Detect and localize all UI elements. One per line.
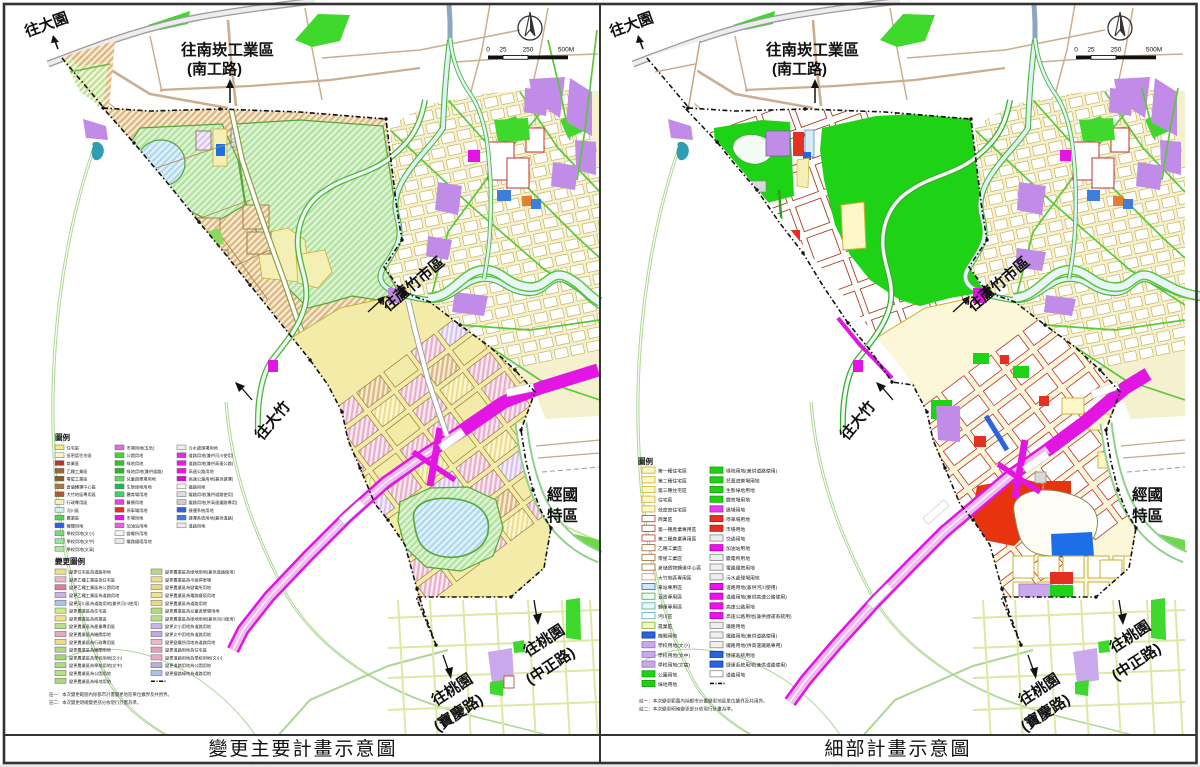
svg-text:加油站用地: 加油站用地 [726, 545, 750, 552]
svg-text:電路鐵塔用地: 電路鐵塔用地 [127, 538, 153, 545]
svg-text:鐵路用地: 鐵路用地 [726, 623, 745, 630]
svg-text:學校用地(文中): 學校用地(文中) [67, 538, 96, 545]
svg-text:變更農業區為機關用地: 變更農業區為機關用地 [69, 647, 112, 654]
svg-text:農業區: 農業區 [658, 623, 673, 630]
svg-text:鐵路用地(兼供道路使用): 鐵路用地(兼供道路使用) [726, 633, 778, 640]
svg-text:道路用地: 道路用地 [726, 671, 745, 678]
svg-text:倉儲貨物轉運中心區: 倉儲貨物轉運中心區 [658, 565, 701, 572]
svg-text:註一：本次變更範圍內除都市計畫變更地區單位擴界及共用界。: 註一：本次變更範圍內除都市計畫變更地區單位擴界及共用界。 [639, 697, 768, 704]
svg-text:註二：本次變更明確變更部分依現行計畫為準。: 註二：本次變更明確變更部分依現行計畫為準。 [49, 699, 141, 706]
svg-text:污水處理場用地: 污水處理場用地 [189, 444, 219, 451]
svg-text:道路用地(兼供河川使用): 道路用地(兼供河川使用) [189, 452, 234, 459]
svg-text:道路用地(兼供高速公路): 道路用地(兼供高速公路) [189, 460, 234, 467]
svg-text:低密度住宅區: 低密度住宅區 [67, 452, 92, 459]
svg-text:往大園: 往大園 [607, 8, 655, 40]
svg-text:變更道路用地為公園用地: 變更道路用地為公園用地 [165, 662, 212, 669]
svg-text:綠地用地(兼供道路使用): 綠地用地(兼供道路使用) [726, 468, 778, 475]
svg-text:變更圖例: 變更圖例 [54, 556, 85, 566]
svg-text:住宅區: 住宅區 [67, 444, 80, 450]
svg-text:綠地用地: 綠地用地 [127, 460, 145, 467]
svg-text:道路用地(兼供高速公路使用): 道路用地(兼供高速公路使用) [726, 594, 787, 601]
svg-text:特區: 特區 [547, 506, 578, 525]
svg-text:低密度住宅區: 低密度住宅區 [658, 506, 687, 513]
svg-text:變更農業區為兒童遊樂場用地: 變更農業區為兒童遊樂場用地 [165, 608, 220, 615]
svg-text:捷運系統用地(兼供道路使用): 捷運系統用地(兼供道路使用) [726, 662, 787, 669]
svg-text:行政專用區: 行政專用區 [67, 499, 88, 506]
svg-text:變更乙種工業區為道路用地: 變更乙種工業區為道路用地 [69, 592, 120, 599]
svg-text:兒童遊樂場用地: 兒童遊樂場用地 [127, 476, 157, 483]
svg-text:變更道路用地為住宅區: 變更道路用地為住宅區 [165, 647, 207, 654]
svg-text:變更鐵路緣地為道路用地: 變更鐵路緣地為道路用地 [165, 670, 212, 677]
svg-text:變更河川區為道路用地(兼供河川使用): 變更河川區為道路用地(兼供河川使用) [69, 600, 139, 607]
svg-text:交通用地: 交通用地 [726, 536, 745, 543]
svg-text:鐵路用地(兼供道路使用): 鐵路用地(兼供道路使用) [189, 491, 234, 498]
svg-text:捷運系統用地(兼供道路): 捷運系統用地(兼供道路) [189, 515, 234, 522]
svg-text:變更農業區為平面停車場: 變更農業區為平面停車場 [165, 576, 212, 583]
svg-text:圖例: 圖例 [638, 456, 653, 466]
svg-text:捷運系統用地: 捷運系統用地 [726, 652, 755, 659]
svg-text:特區: 特區 [1132, 506, 1163, 525]
svg-text:經國: 經國 [1132, 485, 1163, 504]
svg-text:(南工路): (南工路) [187, 60, 242, 78]
svg-text:變更農業區為商業區: 變更農業區為商業區 [69, 615, 107, 622]
svg-text:變更農業區為公園用地: 變更農業區為公園用地 [69, 670, 112, 677]
svg-text:高速公路用地: 高速公路用地 [726, 603, 755, 610]
svg-text:體育場用地: 體育場用地 [726, 497, 750, 504]
svg-text:(南工路): (南工路) [772, 60, 827, 78]
svg-text:學校用地(文高): 學校用地(文高) [67, 546, 96, 553]
svg-text:往南崁工業區: 往南崁工業區 [181, 40, 274, 59]
svg-text:醫療用地: 醫療用地 [127, 499, 145, 506]
svg-text:變更道路用地為學校用地(文小): 變更道路用地為學校用地(文小) [165, 654, 223, 661]
svg-text:250: 250 [1111, 47, 1122, 54]
svg-text:高速公路用地(兼供捷運): 高速公路用地(兼供捷運) [189, 476, 234, 483]
svg-text:變更住宅區為道路用地: 變更住宅區為道路用地 [69, 569, 112, 576]
svg-text:零星工業區: 零星工業區 [67, 476, 88, 483]
svg-text:道路用地: 道路用地 [189, 522, 207, 529]
svg-text:機關用地: 機關用地 [67, 522, 85, 529]
svg-text:生態綠地用地: 生態綠地用地 [726, 487, 755, 494]
svg-text:第二種產業專用區: 第二種產業專用區 [658, 536, 697, 543]
svg-text:第二種住宅區: 第二種住宅區 [658, 477, 687, 484]
svg-text:農業區: 農業區 [67, 515, 80, 522]
svg-text:高速公路用地: 高速公路用地 [189, 468, 215, 475]
svg-text:0: 0 [486, 47, 490, 54]
svg-text:綠地用地: 綠地用地 [658, 681, 677, 688]
svg-text:第一種產業專用區: 第一種產業專用區 [658, 526, 697, 533]
svg-text:停車場用地: 停車場用地 [127, 507, 149, 514]
svg-text:學校用地(文高): 學校用地(文高) [658, 662, 690, 669]
svg-text:250: 250 [523, 47, 534, 54]
svg-text:體育場用地: 體育場用地 [127, 491, 149, 498]
svg-text:河川區: 河川區 [67, 507, 80, 513]
svg-text:大竹地區專用區: 大竹地區專用區 [67, 491, 96, 498]
svg-text:學校用地(文中): 學校用地(文中) [658, 652, 690, 659]
svg-text:變更農業區為道路用地: 變更農業區為道路用地 [165, 600, 208, 607]
svg-text:25: 25 [1087, 47, 1095, 54]
svg-text:學校用地(文小): 學校用地(文小) [658, 642, 690, 649]
svg-text:註二：本次變更明確變更部分依現行計畫為準。: 註二：本次變更明確變更部分依現行計畫為準。 [639, 705, 735, 712]
svg-text:綠地用地(兼供道路): 綠地用地(兼供道路) [127, 468, 164, 475]
svg-text:停車場用地: 停車場用地 [726, 516, 750, 523]
svg-text:變更農業區為學校用地(文中): 變更農業區為學校用地(文中) [69, 662, 123, 669]
svg-text:變更變電所用地為道路用地: 變更變電所用地為道路用地 [165, 639, 216, 646]
svg-text:大竹地區專用區: 大竹地區專用區 [658, 574, 692, 581]
svg-text:電路鐵塔用地: 電路鐵塔用地 [726, 565, 755, 572]
svg-text:百貨專用區: 百貨專用區 [658, 594, 682, 601]
svg-text:市場用地(五危): 市場用地(五危) [127, 444, 156, 451]
svg-text:變更農業區為機關用地: 變更農業區為機關用地 [69, 631, 112, 638]
svg-text:變更農業區為綠地用地(兼供河川使用): 變更農業區為綠地用地(兼供河川使用) [165, 615, 235, 622]
svg-text:往大園: 往大園 [22, 8, 70, 40]
svg-text:經國: 經國 [547, 485, 578, 504]
svg-text:變更農業區為變電所用地: 變更農業區為變電所用地 [165, 584, 212, 591]
svg-text:註一：本次變更範圍內除都市計畫變更地區單位擴界及共用界。: 註一：本次變更範圍內除都市計畫變更地區單位擴界及共用界。 [49, 691, 172, 698]
svg-text:住宅區: 住宅區 [658, 497, 673, 504]
svg-text:市場用地: 市場用地 [127, 515, 145, 522]
svg-text:第三種住宅區: 第三種住宅區 [658, 487, 687, 494]
svg-text:污水處理場用地: 污水處理場用地 [726, 574, 760, 581]
svg-text:零星工業區: 零星工業區 [658, 555, 682, 562]
svg-text:圖例: 圖例 [55, 432, 70, 442]
svg-text:機關用地: 機關用地 [658, 633, 677, 640]
svg-text:生態綠地用地: 生態綠地用地 [127, 483, 153, 490]
svg-text:商業區: 商業區 [658, 516, 673, 523]
svg-text:加油站用地: 加油站用地 [127, 522, 149, 529]
svg-text:轉運專用區: 轉運專用區 [658, 603, 682, 610]
svg-text:道路用地(兼供河川使用): 道路用地(兼供河川使用) [726, 584, 778, 591]
svg-text:變更乙種工業區為住宅區: 變更乙種工業區為住宅區 [69, 576, 115, 583]
svg-text:變更文中用地為道路用地: 變更文中用地為道路用地 [165, 631, 212, 638]
svg-text:鐵路用地(供高速鐵路專用): 鐵路用地(供高速鐵路專用) [189, 499, 238, 506]
svg-text:捷運系統用地: 捷運系統用地 [189, 507, 215, 514]
svg-text:車站專用區: 車站專用區 [658, 584, 682, 591]
svg-text:變更農業區為住宅區: 變更農業區為住宅區 [69, 608, 107, 615]
svg-text:學校用地(文小): 學校用地(文小) [67, 530, 96, 537]
svg-text:市場用地: 市場用地 [726, 526, 745, 533]
svg-text:變更農業區為電路鐵塔用地: 變更農業區為電路鐵塔用地 [165, 592, 216, 599]
svg-text:倉儲轉運中心區: 倉儲轉運中心區 [67, 483, 96, 490]
svg-text:變更農業區為產業專用區: 變更農業區為產業專用區 [69, 623, 115, 630]
svg-text:鐵路用地: 鐵路用地 [189, 483, 207, 490]
svg-text:公園用地: 公園用地 [658, 671, 677, 678]
svg-text:兒童遊樂場用地: 兒童遊樂場用地 [726, 477, 760, 484]
svg-text:廣場用地: 廣場用地 [726, 506, 745, 513]
svg-text:變更乙種工業區為公園用地: 變更乙種工業區為公園用地 [69, 584, 120, 591]
svg-text:變更文小用地為道路用地: 變更文小用地為道路用地 [165, 623, 212, 630]
svg-text:細部計畫示意圖: 細部計畫示意圖 [824, 738, 971, 760]
svg-text:商業區: 商業區 [67, 460, 80, 467]
svg-text:往南崁工業區: 往南崁工業區 [766, 40, 859, 59]
svg-text:變更農業區為行政專用區: 變更農業區為行政專用區 [69, 639, 115, 646]
svg-text:鐵路用地(供高速鐵路專用): 鐵路用地(供高速鐵路專用) [726, 642, 782, 649]
svg-text:變電所用地: 變電所用地 [726, 555, 750, 562]
svg-text:變更農業區為學校用地(文小): 變更農業區為學校用地(文小) [69, 654, 123, 661]
svg-text:變更主要計畫示意圖: 變更主要計畫示意圖 [208, 738, 397, 760]
svg-text:500M: 500M [558, 47, 574, 54]
svg-text:0: 0 [1074, 47, 1078, 54]
svg-text:河川區: 河川區 [658, 613, 673, 620]
svg-text:變更農業區為綠地用地: 變更農業區為綠地用地 [69, 678, 112, 685]
svg-text:25: 25 [499, 47, 507, 54]
svg-text:乙種工業區: 乙種工業區 [658, 545, 682, 552]
svg-text:變電所用地: 變電所用地 [127, 530, 149, 537]
svg-text:高速公路用地(兼供捷運系統用): 高速公路用地(兼供捷運系統用) [726, 613, 792, 620]
svg-text:500M: 500M [1146, 47, 1162, 54]
svg-text:乙種工業區: 乙種工業區 [67, 468, 88, 475]
svg-text:第一種住宅區: 第一種住宅區 [658, 468, 687, 475]
svg-text:公園用地: 公園用地 [127, 452, 145, 459]
svg-text:變更農業區為綠地用地(兼供道路使用): 變更農業區為綠地用地(兼供道路使用) [165, 569, 235, 576]
